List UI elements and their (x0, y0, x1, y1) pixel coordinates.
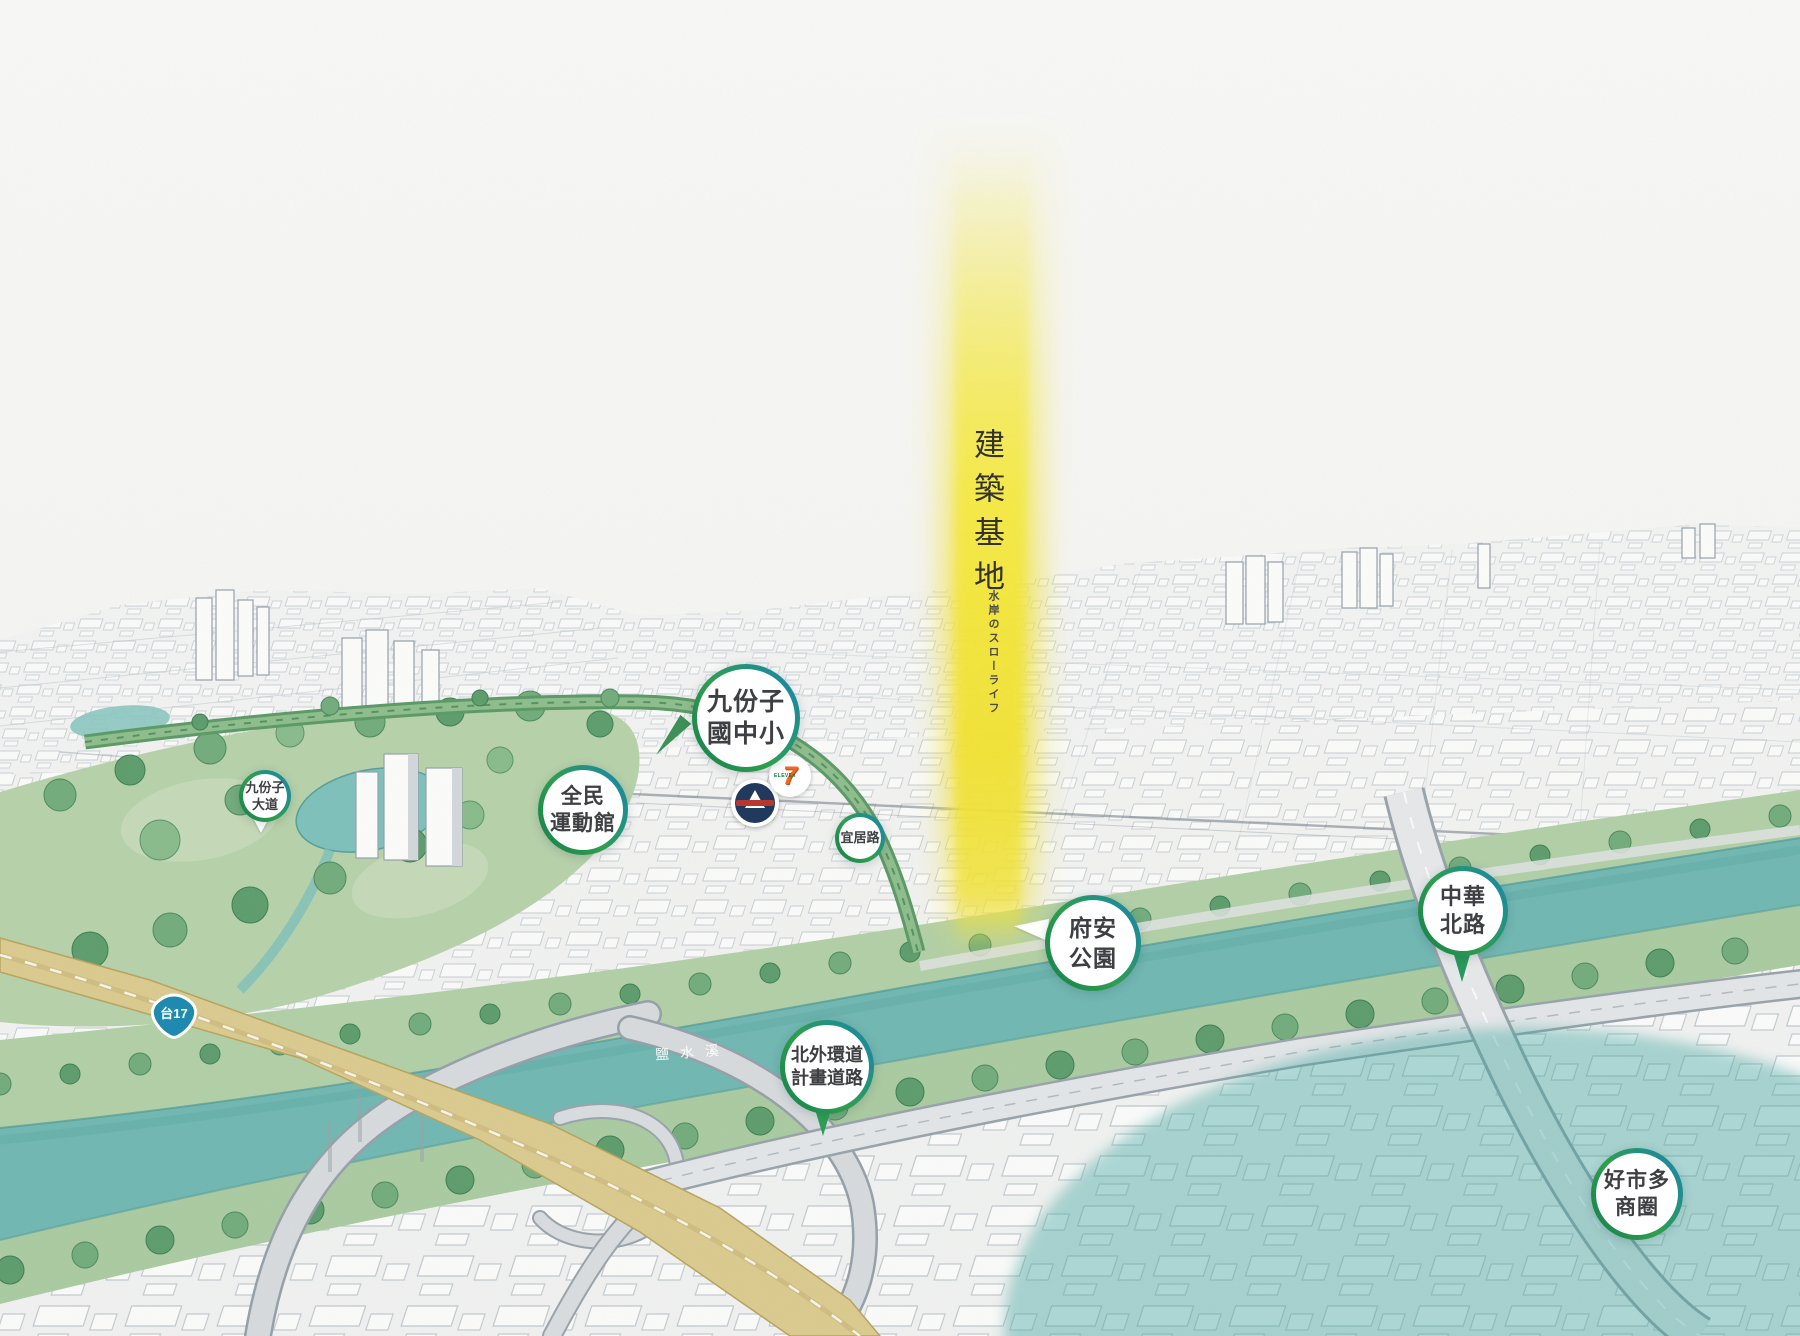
badge-label: 好市多 (1604, 1168, 1670, 1194)
badge-north-outer-ring: 北外環道 計畫道路 (780, 1020, 874, 1114)
badge-label: 計畫道路 (791, 1068, 863, 1090)
badge-zhonghua-north-rd: 中華 北路 (1418, 866, 1508, 956)
badge-label: 北外環道 (791, 1045, 863, 1067)
badge-label: 宜居路 (840, 830, 879, 846)
seven-eleven-sub-label: ELEVEn (774, 773, 796, 779)
fuan-park-pointer (1013, 915, 1049, 940)
badge-label: 中華 (1440, 884, 1486, 911)
site-tagline-vertical: 水岸のスローライフ (985, 590, 1001, 716)
badge-yiju-road: 宜居路 (835, 813, 885, 863)
badge-label: 商圈 (1615, 1195, 1659, 1221)
badge-label: 北路 (1440, 912, 1486, 939)
badge-label: 府安 (1069, 914, 1117, 942)
badge-label: 大道 (252, 797, 278, 813)
highway-shield-label: 台17 (150, 993, 198, 1031)
badge-label: 運動館 (550, 811, 616, 837)
badge-label: 全民 (561, 784, 605, 810)
brand-logo-icon (735, 783, 775, 823)
badge-quanmin-gym: 全民 運動館 (538, 765, 628, 855)
badge-label: 國中小 (707, 719, 785, 750)
location-map-illustration: 建築基地 水岸のスローライフ 鹽水溪 台17 7 ELEVEn 九份子 國中小 … (0, 0, 1800, 1336)
badge-label: 公園 (1069, 944, 1117, 972)
paper-grain (0, 0, 1800, 1336)
badge-fuan-park: 府安 公園 (1045, 895, 1141, 991)
map-artwork (0, 0, 1800, 1336)
badge-jiufenzi-school: 九份子 國中小 (692, 664, 800, 772)
badge-label: 九份子 (707, 687, 785, 718)
brand-logo-band (736, 800, 774, 806)
badge-jiufenzi-blvd: 九份子 大道 (239, 770, 291, 822)
site-title-vertical: 建築基地 (964, 428, 1009, 604)
highway-17-shield: 台17 (150, 993, 198, 1039)
badge-label: 九份子 (245, 780, 284, 796)
badge-costco-district: 好市多 商圈 (1591, 1148, 1683, 1240)
